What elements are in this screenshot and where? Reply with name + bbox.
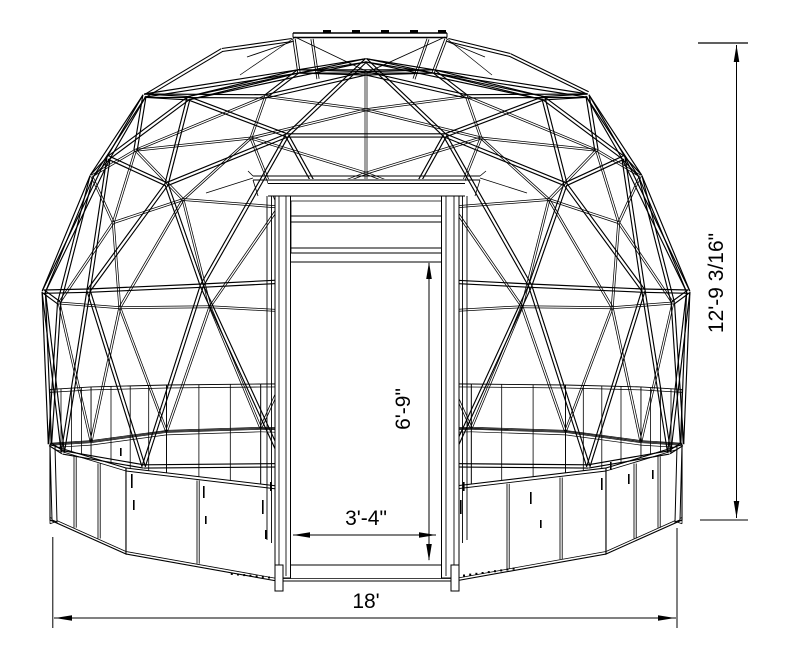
svg-text:18': 18' (352, 590, 379, 613)
svg-text:3'-4": 3'-4" (345, 507, 387, 530)
svg-text:12'-9 3/16": 12'-9 3/16" (705, 233, 728, 333)
svg-text:6'-9": 6'-9" (392, 388, 415, 430)
